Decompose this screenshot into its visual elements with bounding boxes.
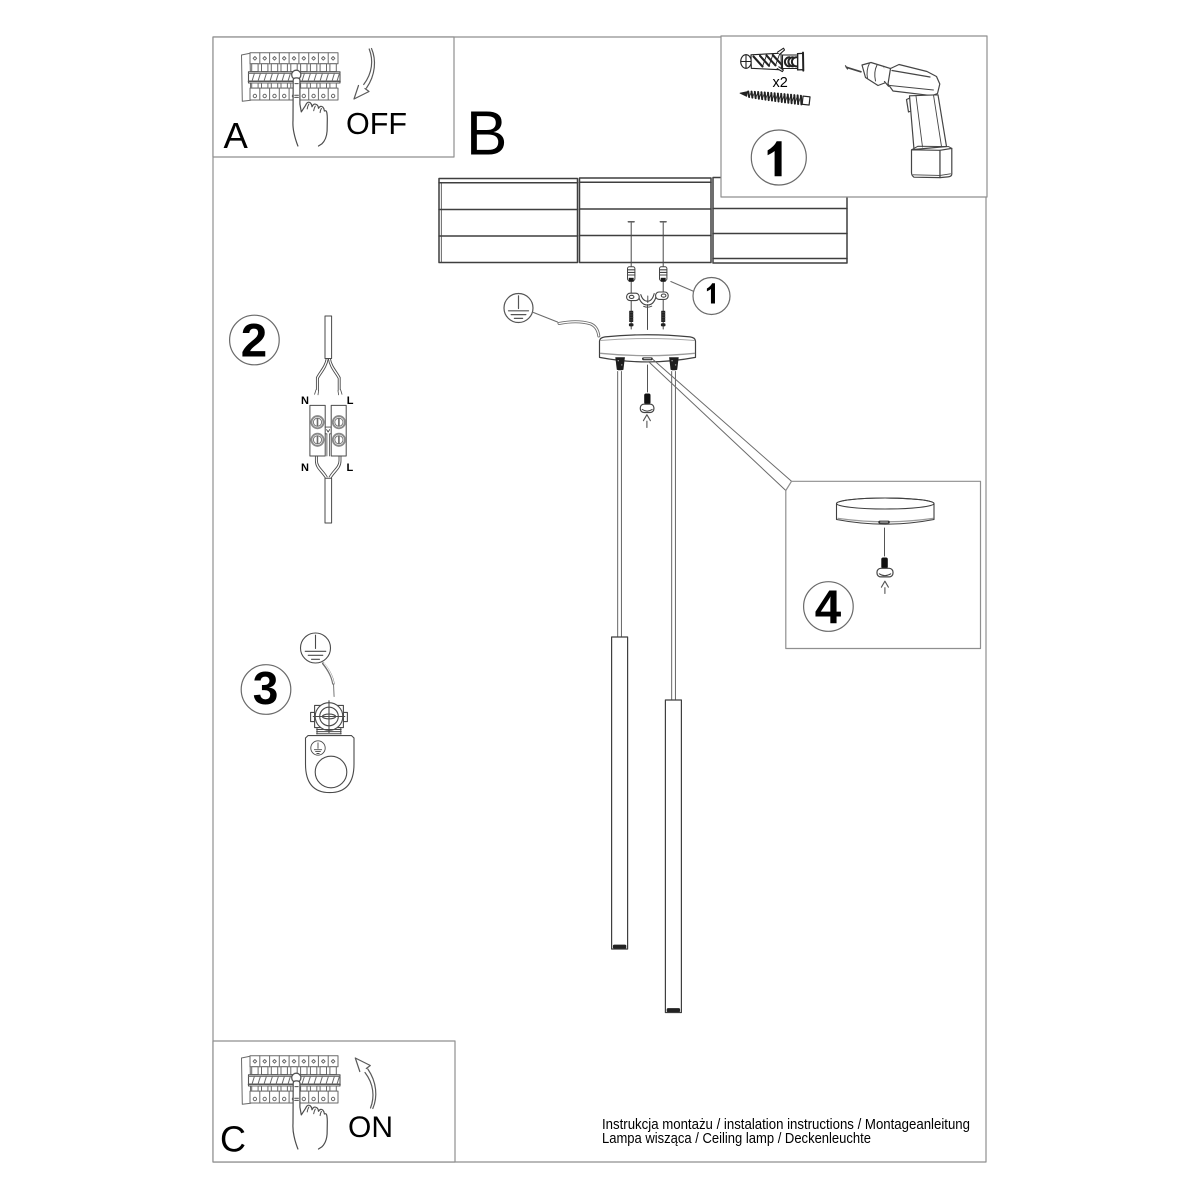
svg-text:B: B bbox=[466, 100, 507, 169]
svg-text:A: A bbox=[224, 115, 249, 156]
svg-text:ON: ON bbox=[348, 1111, 393, 1144]
svg-text:Lampa wisząca / Ceiling lamp /: Lampa wisząca / Ceiling lamp / Deckenleu… bbox=[602, 1131, 871, 1147]
svg-text:4: 4 bbox=[815, 581, 842, 634]
svg-text:C: C bbox=[220, 1119, 246, 1160]
svg-text:OFF: OFF bbox=[346, 107, 407, 141]
svg-text:L: L bbox=[347, 395, 354, 407]
svg-text:L: L bbox=[347, 462, 354, 474]
svg-text:3: 3 bbox=[253, 662, 279, 714]
svg-text:x2: x2 bbox=[773, 75, 788, 91]
svg-text:N: N bbox=[301, 395, 309, 407]
svg-text:2: 2 bbox=[241, 315, 267, 368]
svg-text:N: N bbox=[301, 462, 309, 474]
